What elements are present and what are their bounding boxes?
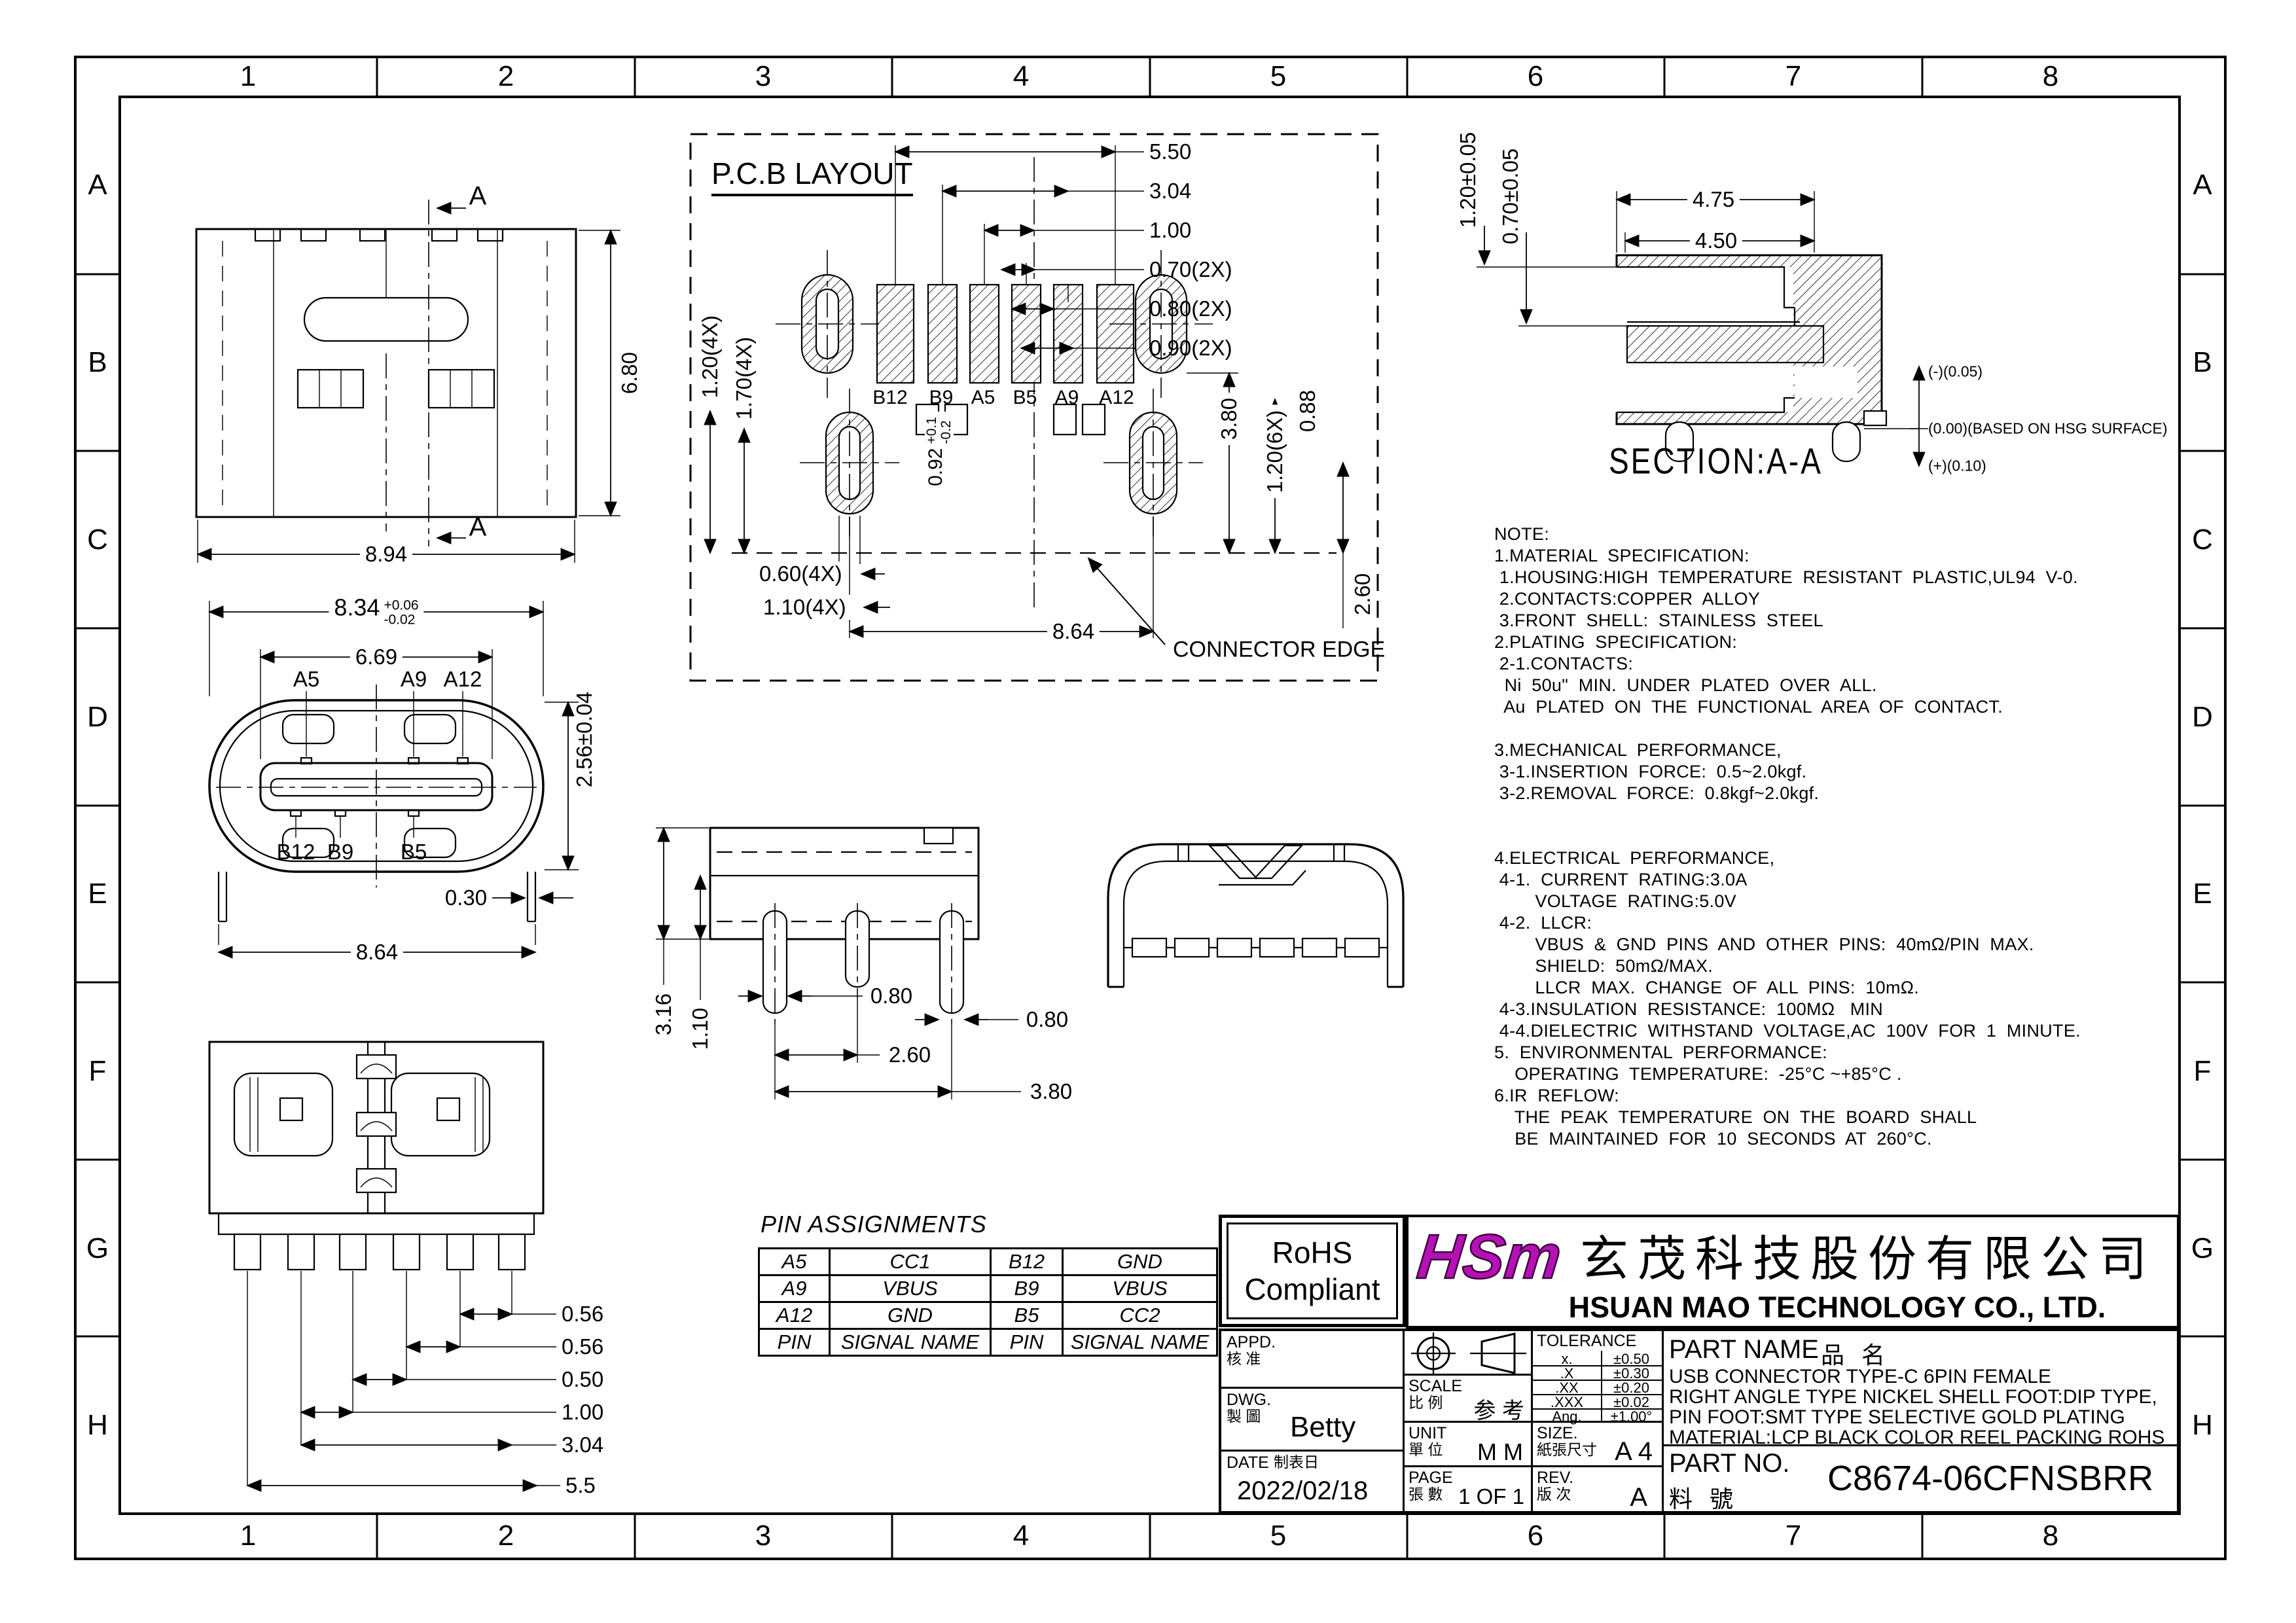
dwg-cell: DWG. 製 圖 Betty [1221,1389,1405,1452]
col-label: 4 [1013,60,1029,93]
company-banner: HSm 玄茂科技股份有限公司 HSUAN MAO TECHNOLOGY CO.,… [1406,1215,2179,1329]
sec-ann-zero: (0.00)(BASED ON HSG SURFACE) [1928,420,2168,438]
row-label: E [88,878,107,910]
row-label: A [88,169,107,202]
side-dim3: 0.80 [870,984,912,1008]
sec-ann-plus: (+)(0.10) [1928,457,1986,475]
pin-cell: A12 [759,1302,830,1329]
col-label: 7 [1785,1520,1801,1552]
row-label: G [86,1232,109,1265]
pin-cell: SIGNAL NAME [1063,1329,1217,1356]
col-label: 3 [755,1520,771,1552]
top-view-drawing [196,200,620,563]
scale-value: 参 考 [1474,1393,1524,1425]
col-label: 6 [1528,1520,1543,1552]
part-no-label-zh: 料 號 [1669,1480,1738,1514]
row-label: E [2193,878,2212,910]
col-label: 5 [1270,1520,1286,1552]
col-label: 7 [1785,60,1801,93]
row-label: F [2194,1055,2212,1088]
part-name-line: PIN FOOT:SMT TYPE SELECTIVE GOLD PLATING [1669,1407,2164,1427]
pcb-dim: 3.04 [1149,179,1191,204]
row-label: H [87,1409,108,1442]
col-label: 8 [2043,60,2058,93]
pin-cell: A5 [759,1249,830,1275]
front-pin-a5: A5 [293,667,319,692]
row-label: H [2192,1409,2213,1442]
col-label: 2 [498,1520,514,1552]
side-dim4: 0.80 [1026,1007,1068,1032]
row-label: F [89,1055,107,1088]
pcb-dim-left2: 1.70(4X) [732,332,757,425]
part-no-value: C8674-06CFNSBRR [1827,1458,2153,1499]
notes-block: NOTE: 1.MATERIAL SPECIFICATION: 1.HOUSIN… [1494,524,2081,1150]
col-label: 5 [1270,60,1286,93]
pcb-dim-right3: 0.88 [1295,385,1320,437]
pad-label: A9 [1055,387,1079,409]
rohs-line2: Compliant [1244,1271,1380,1308]
front-pin-b5: B5 [401,840,427,865]
bottom-dim: 5.5 [565,1473,596,1498]
row-label: B [88,346,107,379]
pin-table-row: A12 GND B5 CC2 [759,1302,1217,1329]
pcb-dim-v: 2.60 [1350,568,1375,620]
pad-label: A5 [971,387,996,409]
pin-cell: PIN [759,1329,830,1356]
part-name-line: USB CONNECTOR TYPE-C 6PIN FEMALE [1669,1366,2164,1387]
part-no-cell: PART NO. 料 號 C8674-06CFNSBRR [1664,1446,2177,1511]
rear-view-drawing [1108,844,1403,987]
pcb-title: P.C.B LAYOUT [711,156,913,196]
rohs-line1: RoHS [1272,1234,1353,1271]
pin-cell: CC2 [1063,1302,1217,1329]
row-label: C [87,524,108,556]
bottom-dim: 1.00 [562,1400,603,1425]
company-logo: HSm [1414,1221,1564,1293]
appd-cell: APPD. 核 准 [1221,1331,1405,1389]
col-label: 3 [755,60,771,93]
dwg-label: DWG. [1227,1391,1403,1408]
part-name-label: PART NAME [1669,1335,1819,1364]
col-label: 8 [2043,1520,2058,1552]
pcb-dim-right1: 3.80 [1217,393,1242,445]
row-label: G [2191,1232,2214,1265]
row-label: D [87,701,108,734]
col-label: 4 [1013,1520,1029,1552]
date-label-zh: 制表日 [1274,1454,1319,1471]
date-value: 2022/02/18 [1237,1476,1368,1506]
front-pin-b12: B12 [277,840,315,865]
pcb-dim-right2: 1.20(6X) [1263,405,1287,499]
company-name-en: HSUAN MAO TECHNOLOGY CO., LTD. [1500,1291,2174,1325]
unit-cell: UNIT 單 位 M M [1405,1423,1533,1467]
pcb-dim: 0.80(2X) [1149,296,1232,321]
bottom-dim: 0.56 [562,1302,603,1327]
page-value: 1 OF 1 [1458,1484,1524,1509]
pad-label: B9 [929,387,954,409]
pin-cell: CC1 [830,1249,991,1275]
side-dim2: 1.10 [688,1008,713,1050]
tolerance-title: TOLERANCE [1537,1332,1662,1349]
rev-value: A [1630,1483,1647,1512]
pin-assignments-table: A5 CC1 B12 GND A9 VBUS B9 VBUS A12 GND B… [758,1247,1218,1357]
sec-dim1: 4.75 [1687,187,1740,212]
side-dim5: 2.60 [889,1043,931,1067]
col-label: 1 [240,60,256,93]
row-label: C [2192,524,2213,556]
pin-cell: VBUS [1063,1275,1217,1302]
unit-value: M M [1477,1438,1523,1466]
front-dim-h: 2.56±0.04 [572,692,597,788]
front-dim-w2: 6.69 [350,645,403,669]
sec-dim2: 4.50 [1690,228,1742,253]
pin-table-row: A5 CC1 B12 GND [759,1249,1217,1275]
title-block: APPD. 核 准 DWG. 製 圖 Betty DATE 制表日 2022/0… [1219,1329,2179,1514]
pin-table-title: PIN ASSIGNMENTS [761,1211,987,1238]
side-view-drawing [656,828,1021,1099]
side-dim1: 3.16 [651,993,676,1035]
sec-dimL1: 1.20±0.05 [1456,132,1480,228]
dim-height-6-80: 6.80 [617,352,642,394]
pin-cell: B12 [991,1249,1063,1275]
pad-label: B12 [872,387,907,409]
appd-label: APPD. [1227,1334,1403,1351]
side-dim6: 3.80 [1030,1079,1072,1104]
front-pin-a9: A9 [401,667,427,692]
col-label: 2 [498,60,514,93]
pcb-dim-b3: 8.64 [1047,619,1100,644]
pin-table-row: A9 VBUS B9 VBUS [759,1275,1217,1302]
projection-symbol-cell [1405,1331,1533,1376]
row-label: B [2193,346,2212,379]
front-pin-b9: B9 [327,840,353,865]
pin-cell: GND [830,1302,991,1329]
pcb-dim: 0.90(2X) [1149,336,1232,361]
section-marker-a-bottom: A [469,513,487,543]
front-dim-w3: 8.64 [351,940,403,965]
pcb-dim: 5.50 [1149,139,1191,164]
pcb-dim-b1: 0.60(4X) [754,562,848,586]
sec-dimL2: 0.70±0.05 [1498,149,1523,245]
part-name-line: MATERIAL:LCP BLACK COLOR REEL PACKING RO… [1669,1427,2164,1448]
engineering-drawing-sheet: { "border":{"cols":["1","2","3","4","5",… [0,0,2296,1623]
page-cell: PAGE 張 數 1 OF 1 [1405,1467,1533,1511]
row-label: D [2192,701,2213,734]
rev-cell: REV. 版 次 A [1533,1467,1664,1511]
part-name-cell: PART NAME 品 名 USB CONNECTOR TYPE-C 6PIN … [1664,1331,2177,1446]
col-label: 6 [1528,60,1543,93]
part-name-line: RIGHT ANGLE TYPE NICKEL SHELL FOOT:DIP T… [1669,1387,2164,1407]
pcb-dim: 1.00 [1149,218,1191,243]
rohs-badge: RoHS Compliant [1219,1215,1406,1327]
size-value: A 4 [1615,1437,1653,1467]
col-label: 1 [240,1520,256,1552]
pin-cell: A9 [759,1275,830,1302]
front-dim-w: 8.34+0.06-0.02 [329,594,423,628]
pcb-dim-b2: 1.10(4X) [758,595,852,620]
pin-cell: B5 [991,1302,1063,1329]
scale-cell: SCALE 比 例 参 考 [1405,1376,1533,1423]
company-name-zh: 玄茂科技股份有限公司 [1580,1220,2156,1290]
front-pin-a12: A12 [444,667,482,692]
bottom-view-drawing [209,1042,560,1486]
size-cell: SIZE. 紙張尺寸 A 4 [1533,1423,1664,1467]
row-label: A [2193,169,2212,202]
bottom-dim: 3.04 [562,1433,603,1457]
bottom-dim: 0.56 [562,1334,603,1359]
third-angle-projection-icon [1405,1331,1533,1376]
pcb-dim-left1: 1.20(4X) [698,310,723,404]
pin-cell: VBUS [830,1275,991,1302]
pin-cell: GND [1063,1249,1217,1275]
pin-cell: B9 [991,1275,1063,1302]
pin-cell: SIGNAL NAME [830,1329,991,1356]
date-cell: DATE 制表日 2022/02/18 [1221,1452,1405,1511]
tolerance-cell: TOLERANCE x. ±0.50 .X ±0.30 .XX ±0.20 .X… [1533,1331,1664,1423]
section-title: SECTION:A-A [1609,440,1823,482]
pad-label: B5 [1013,387,1037,409]
pin-cell: PIN [991,1329,1063,1356]
front-dim-leg: 0.30 [440,885,492,910]
part-no-label: PART NO. [1669,1449,1790,1478]
bottom-dim: 0.50 [562,1367,603,1392]
connector-edge-label: CONNECTOR EDGE [1173,637,1385,663]
pcb-slot-dim: 0.92+0.1-0.2 [925,412,954,491]
sec-ann-minus: (-)(0.05) [1928,363,1982,381]
pad-label: A12 [1099,387,1134,409]
dim-width-8-94: 8.94 [360,542,412,567]
pcb-dim: 0.70(2X) [1149,257,1232,282]
appd-label-zh: 核 准 [1227,1351,1403,1367]
section-marker-a-top: A [469,182,487,211]
dwg-value: Betty [1290,1411,1355,1444]
pin-table-row: PIN SIGNAL NAME PIN SIGNAL NAME [759,1329,1217,1356]
